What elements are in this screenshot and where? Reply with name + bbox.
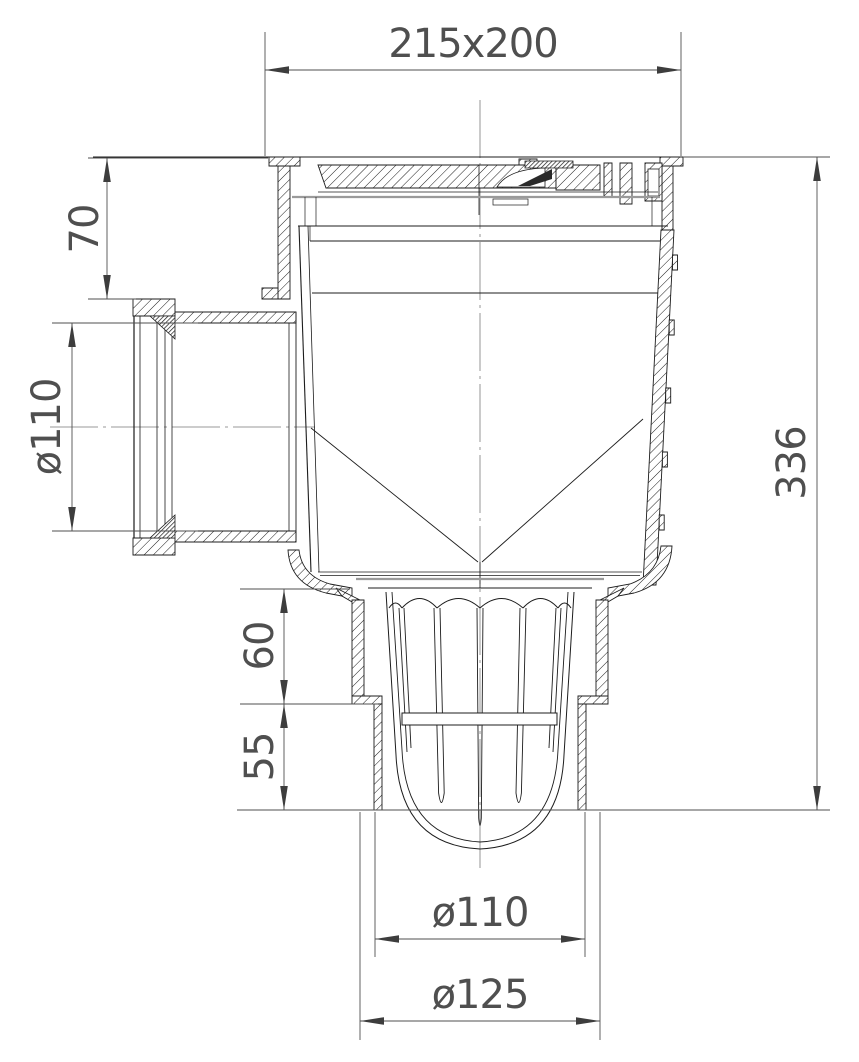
frame-right-section [645,157,683,242]
dim-inlet-diameter-label: ø110 [24,379,70,476]
lid-section [292,159,660,215]
dim-overall-height-label: 336 [769,426,815,499]
dim-outlet-upper-step-label: 60 [237,622,283,671]
frame-left-section [262,157,300,299]
dimension-top-frame: 215x200 [265,21,681,156]
basket-mid-ring [402,713,557,725]
dimension-overall-height: 336 [683,157,830,810]
dimension-lid-height: 70 [62,158,268,299]
body-rim [298,197,668,293]
body-wall-right-section [643,230,678,585]
technical-drawing-page: 215x200 70 ø110 336 60 [0,0,859,1062]
lid-tab [493,199,528,205]
dim-lid-height-label: 70 [62,205,108,254]
internal-funnel [311,419,643,588]
dim-outlet-collar-diameter-label: ø125 [432,972,529,1018]
body-wall-left [299,226,319,572]
dim-top-frame-label: 215x200 [388,21,557,67]
socket-seal-bottom [150,515,175,538]
socket-seal-top [150,316,175,339]
dim-outlet-diameter-label: ø110 [432,890,529,936]
dim-outlet-lower-step-label: 55 [237,733,283,782]
technical-drawing-canvas: 215x200 70 ø110 336 60 [0,0,859,1062]
